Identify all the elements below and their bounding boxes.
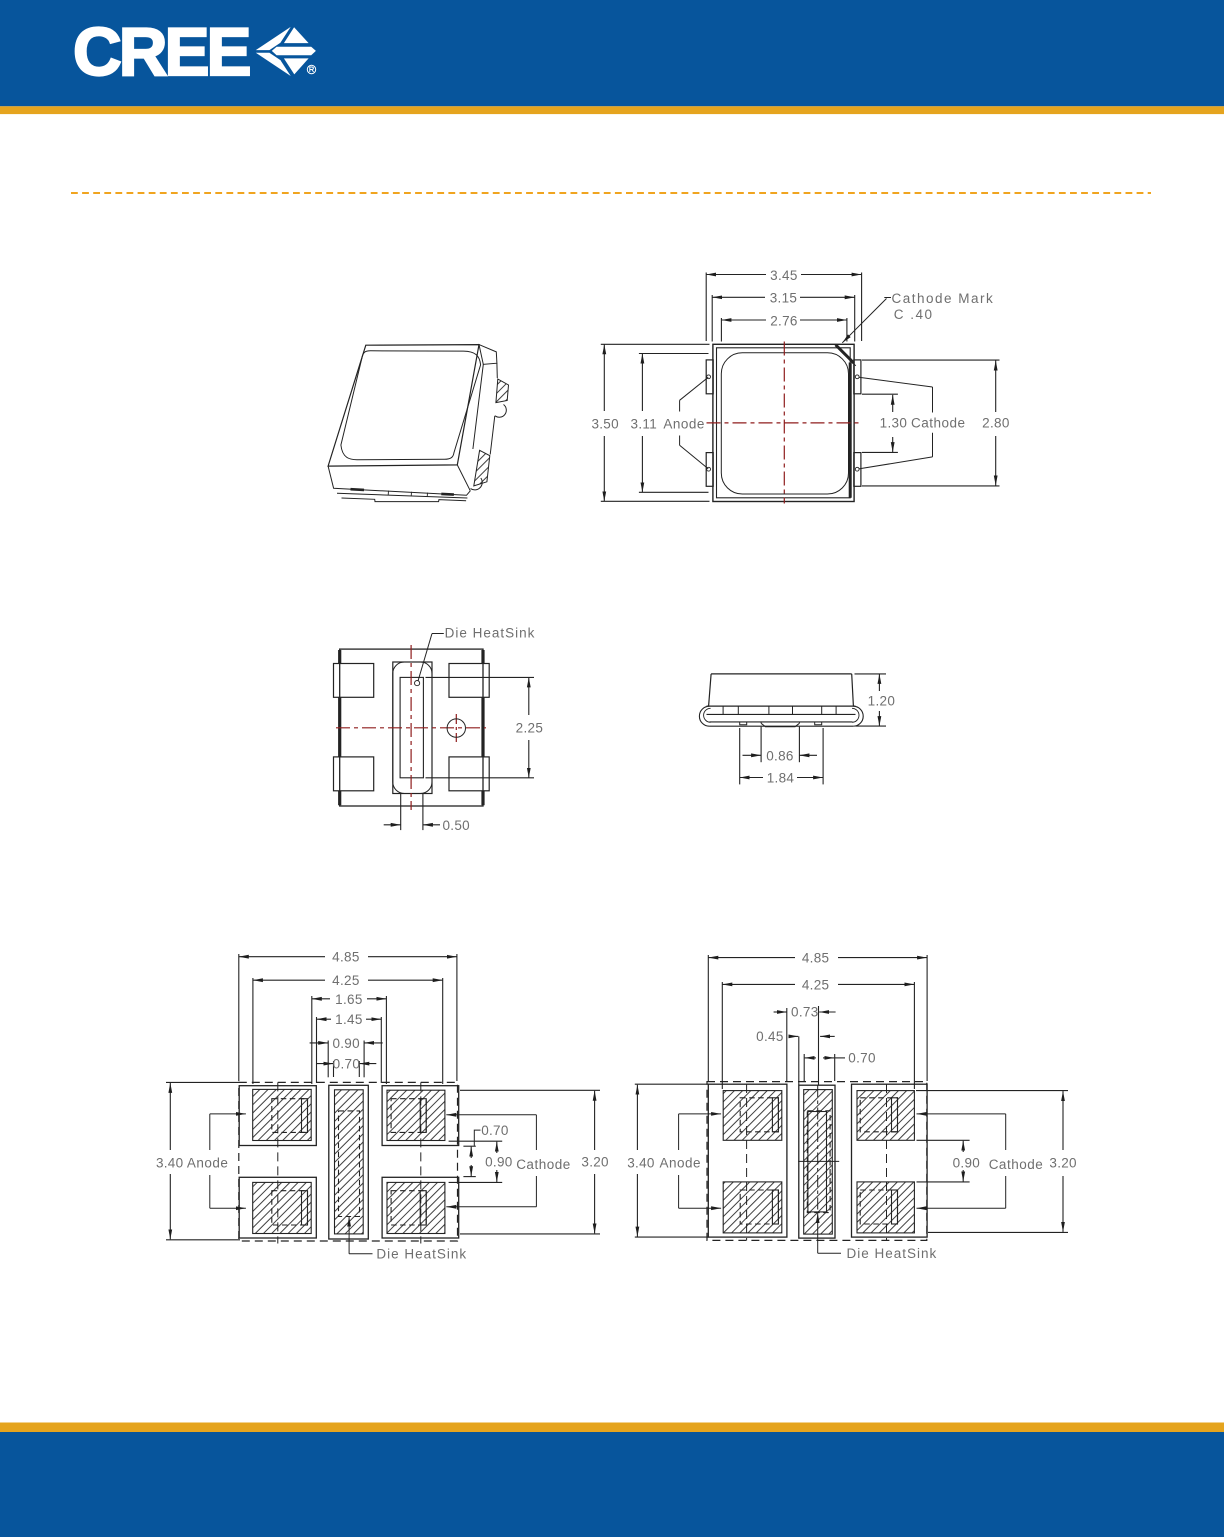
svg-text:1.30: 1.30 bbox=[880, 415, 907, 430]
svg-text:0.70: 0.70 bbox=[481, 1123, 508, 1138]
svg-text:Anode: Anode bbox=[187, 1156, 229, 1171]
svg-text:Cathode: Cathode bbox=[911, 415, 966, 430]
svg-text:4.25: 4.25 bbox=[802, 977, 829, 992]
svg-text:3.45: 3.45 bbox=[770, 268, 797, 283]
svg-text:0.73: 0.73 bbox=[791, 1005, 818, 1020]
svg-text:C .40: C .40 bbox=[894, 307, 934, 322]
svg-text:Cathode Mark: Cathode Mark bbox=[892, 291, 995, 306]
svg-text:0.50: 0.50 bbox=[443, 818, 470, 833]
svg-text:3.15: 3.15 bbox=[770, 291, 797, 306]
svg-text:0.45: 0.45 bbox=[756, 1029, 783, 1044]
svg-text:4.25: 4.25 bbox=[332, 973, 359, 988]
svg-text:0.90: 0.90 bbox=[485, 1155, 512, 1170]
svg-text:1.65: 1.65 bbox=[335, 992, 362, 1007]
svg-text:Die HeatSink: Die HeatSink bbox=[376, 1247, 467, 1262]
svg-text:0.70: 0.70 bbox=[848, 1050, 875, 1065]
svg-text:0.90: 0.90 bbox=[953, 1156, 980, 1171]
svg-text:3.20: 3.20 bbox=[1049, 1156, 1076, 1171]
svg-text:0.70: 0.70 bbox=[333, 1057, 360, 1072]
svg-text:Cathode: Cathode bbox=[516, 1157, 571, 1172]
svg-text:0.90: 0.90 bbox=[332, 1036, 359, 1051]
svg-text:1.20: 1.20 bbox=[868, 694, 895, 709]
svg-text:1.45: 1.45 bbox=[335, 1012, 362, 1027]
svg-text:Anode: Anode bbox=[660, 1156, 702, 1171]
svg-text:3.50: 3.50 bbox=[591, 416, 618, 431]
svg-text:0.86: 0.86 bbox=[766, 748, 793, 763]
svg-text:2.25: 2.25 bbox=[516, 720, 543, 735]
svg-text:3.11: 3.11 bbox=[631, 416, 657, 431]
svg-text:Anode: Anode bbox=[663, 416, 705, 431]
svg-text:4.85: 4.85 bbox=[332, 950, 359, 965]
svg-text:3.20: 3.20 bbox=[581, 1155, 608, 1170]
svg-text:3.40: 3.40 bbox=[156, 1156, 183, 1171]
svg-text:1.84: 1.84 bbox=[767, 770, 795, 785]
svg-text:Die HeatSink: Die HeatSink bbox=[847, 1246, 938, 1261]
svg-text:2.80: 2.80 bbox=[982, 415, 1009, 430]
svg-text:CREE: CREE bbox=[73, 15, 250, 90]
svg-text:2.76: 2.76 bbox=[770, 313, 797, 328]
svg-text:3.40: 3.40 bbox=[627, 1156, 654, 1171]
svg-text:4.85: 4.85 bbox=[802, 951, 829, 966]
svg-text:Cathode: Cathode bbox=[989, 1157, 1044, 1172]
svg-text:Die HeatSink: Die HeatSink bbox=[445, 626, 536, 641]
